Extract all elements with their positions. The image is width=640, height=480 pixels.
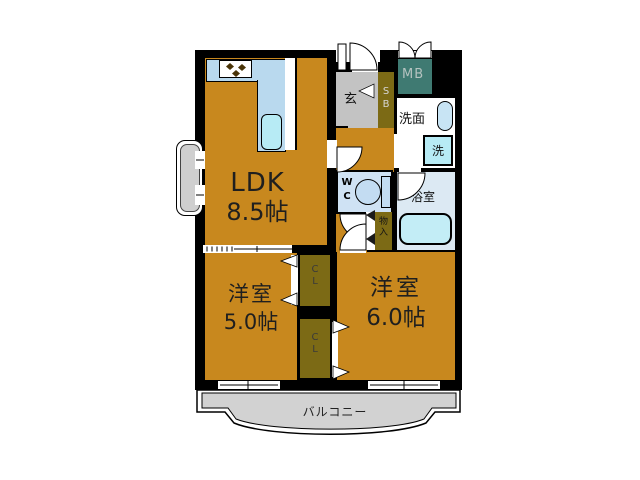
stove-icon (219, 60, 252, 78)
washbasin-icon (437, 101, 453, 131)
bathtub-icon (399, 213, 452, 245)
kitchen-sink-icon (261, 114, 282, 150)
balcony-label: バルコニー (280, 403, 390, 420)
bedroom-east-label: 洋室 6.0帖 (337, 274, 455, 335)
entrance-recess (336, 50, 380, 62)
window-opening (195, 151, 205, 169)
washing-machine-label: 洗 (432, 142, 444, 159)
door-opening (399, 167, 421, 173)
window-opening (218, 381, 280, 389)
floorplan: S B 洗 W C 物 入 C L C L (0, 0, 640, 480)
sliding-partition (203, 245, 292, 253)
toilet-tank-icon (381, 176, 391, 208)
shoe-box-label: S (378, 85, 394, 98)
toilet-room-label: W C (340, 176, 354, 204)
bedroom-west-label: 洋室 5.0帖 (205, 281, 297, 337)
door-opening (327, 140, 337, 168)
ldk-label: LDK 8.5帖 (200, 168, 315, 226)
window-opening (368, 381, 440, 389)
washing-machine: 洗 (423, 135, 453, 166)
shoe-box: S B (378, 72, 394, 128)
meter-box-label: MB (402, 67, 424, 82)
door-opening (340, 246, 366, 253)
closet-lower: C L (298, 317, 332, 380)
entrance-label: 玄 (344, 88, 357, 107)
storage-closet: 物 入 (375, 212, 392, 250)
closet-upper: C L (298, 253, 332, 308)
corridor (336, 128, 394, 172)
refrigerator-space (285, 58, 297, 150)
storage-door (366, 212, 375, 250)
bathroom-label: 浴室 (411, 188, 435, 205)
washroom-label: 洗面 (399, 108, 425, 127)
toilet-icon (355, 179, 381, 205)
